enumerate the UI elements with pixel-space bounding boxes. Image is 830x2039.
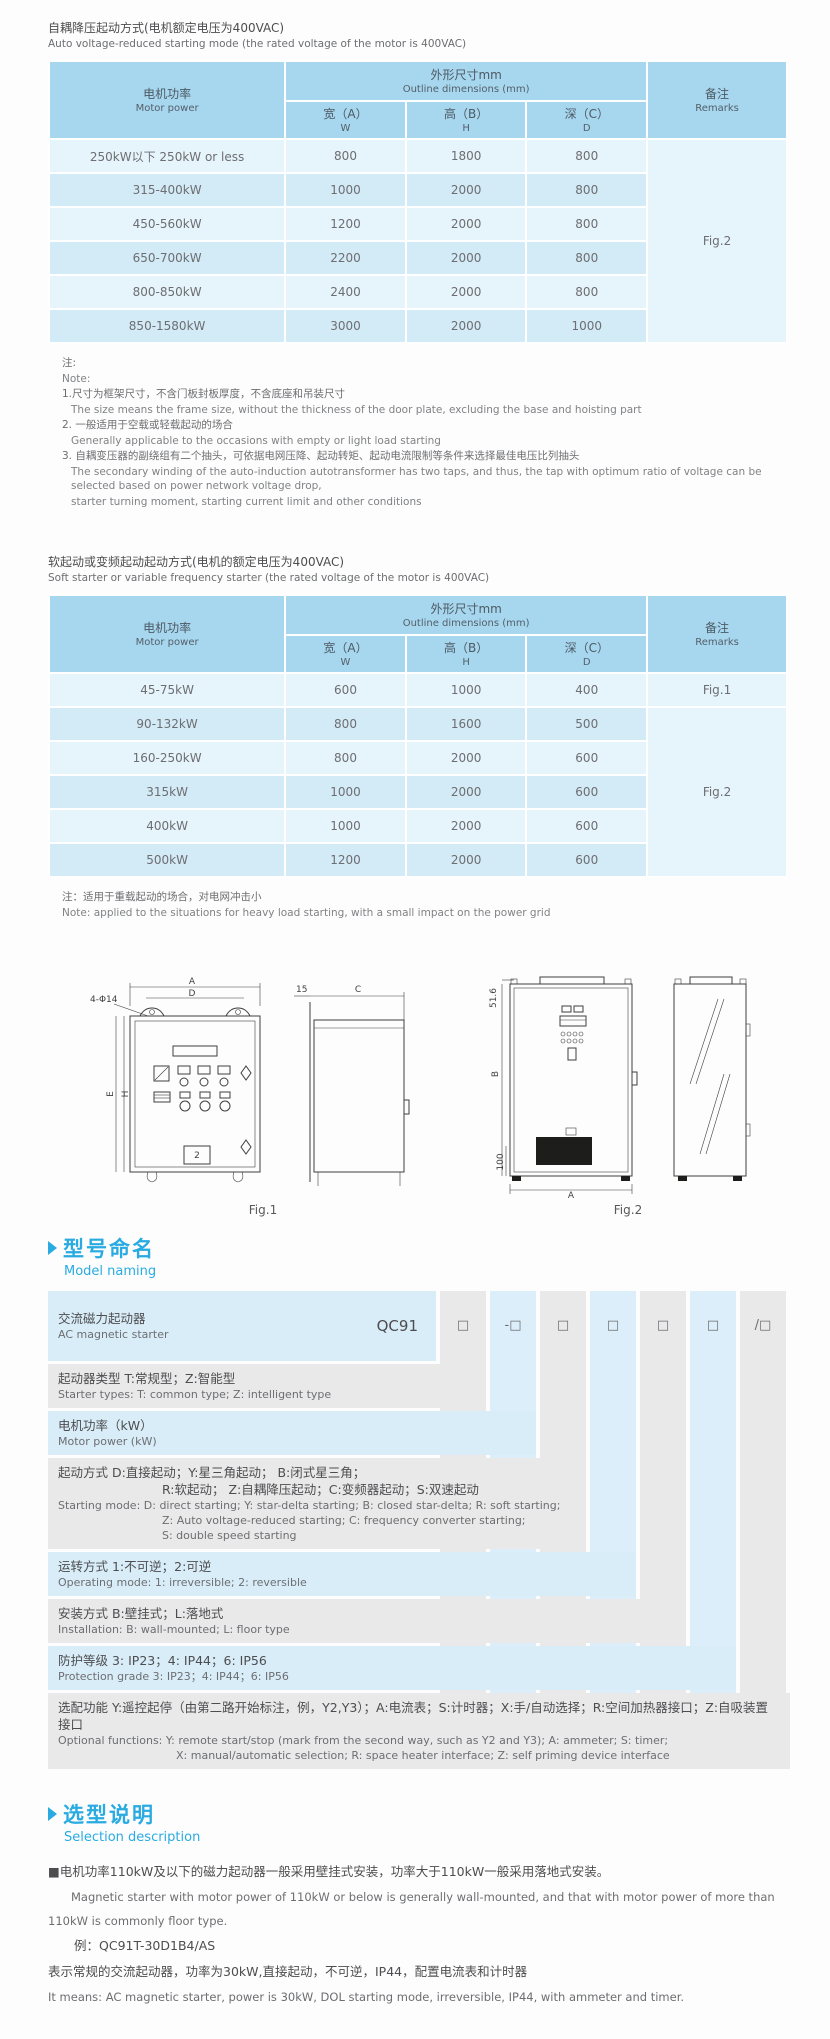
- header-depth: 深（C）D: [526, 101, 647, 139]
- model-naming-table: □ -□ □ □ □ □ /□ 交流磁力起动器 AC magnetic star…: [48, 1291, 790, 1769]
- fig1-caption: Fig.1: [88, 1203, 438, 1217]
- fig2-dim-b: B: [491, 1071, 501, 1077]
- depth-cell: 800: [526, 241, 647, 275]
- height-cell: 1800: [406, 139, 527, 173]
- table-row: 250kW以下 250kW or less 800 1800 800 Fig.2: [49, 139, 787, 173]
- fig1-dim-15: 15: [296, 985, 307, 995]
- note-label-zh: 注:: [62, 356, 790, 371]
- depth-cell: 500: [526, 707, 647, 741]
- height-cell: 2000: [406, 173, 527, 207]
- selection-title-en: Selection description: [64, 1830, 790, 1845]
- note-item: 2. 一般适用于空载或轻载起动的场合: [62, 418, 790, 433]
- fig2-roughness: 51.6: [489, 988, 499, 1008]
- power-cell: 500kW: [49, 843, 285, 877]
- height-cell: 2000: [406, 809, 527, 843]
- remark-cell: Fig.2: [647, 139, 787, 343]
- power-cell: 250kW以下 250kW or less: [49, 139, 285, 173]
- table2-title-en: Soft starter or variable frequency start…: [48, 571, 790, 586]
- header-width: 宽（A）W: [285, 635, 406, 673]
- power-cell: 400kW: [49, 809, 285, 843]
- selection-example-zh: 表示常规的交流起动器，功率为30kW,直接起动，不可逆，IP44，配置电流表和计…: [48, 1959, 790, 1985]
- depth-cell: 800: [526, 173, 647, 207]
- header-remarks: 备注 Remarks: [647, 61, 787, 139]
- auto-voltage-reduced-table: 电机功率 Motor power 外形尺寸mm Outline dimensio…: [48, 60, 788, 344]
- soft-starter-table: 电机功率 Motor power 外形尺寸mm Outline dimensio…: [48, 594, 788, 878]
- naming-row-installation: 安装方式 B:壁挂式；L:落地式 Installation: B: wall-m…: [48, 1599, 686, 1643]
- naming-row-product: 交流磁力起动器 AC magnetic starter QC91: [48, 1291, 436, 1361]
- table-row: 45-75kW 600 1000 400 Fig.1: [49, 673, 787, 707]
- height-cell: 2000: [406, 741, 527, 775]
- header-motor-power: 电机功率 Motor power: [49, 61, 285, 139]
- table2-title-zh: 软起动或变频起动起动方式(电机的额定电压为400VAC): [48, 554, 790, 571]
- header-outline-dimensions: 外形尺寸mm Outline dimensions (mm): [285, 61, 647, 101]
- fig2-drawing: 51.6 B: [478, 954, 778, 1199]
- depth-cell: 600: [526, 843, 647, 877]
- selection-example: 例：QC91T-30D1B4/AS: [74, 1933, 790, 1959]
- width-cell: 3000: [285, 309, 406, 343]
- section-arrow-icon: [48, 1241, 57, 1255]
- width-cell: 1000: [285, 173, 406, 207]
- height-cell: 2000: [406, 275, 527, 309]
- model-naming-title-zh: 型号命名: [63, 1233, 155, 1263]
- note-item: Note: applied to the situations for heav…: [62, 906, 790, 921]
- header-outline-dimensions: 外形尺寸mm Outline dimensions (mm): [285, 595, 647, 635]
- depth-cell: 400: [526, 673, 647, 707]
- fig1-dim-a: A: [189, 977, 196, 987]
- naming-row-starter-type: 起动器类型 T:常规型；Z:智能型 Starter types: T: comm…: [48, 1364, 486, 1408]
- fig1-dim-d: D: [189, 989, 196, 999]
- height-cell: 2000: [406, 309, 527, 343]
- width-cell: 2400: [285, 275, 406, 309]
- note-item: 注：适用于重载起动的场合，对电网冲击小: [62, 890, 790, 905]
- selection-paragraph-zh: ■电机功率110kW及以下的磁力起动器一般采用壁挂式安装，功率大于110kW一般…: [48, 1859, 790, 1885]
- width-cell: 600: [285, 673, 406, 707]
- fig2-dim-100: 100: [496, 1153, 506, 1170]
- height-cell: 1000: [406, 673, 527, 707]
- width-cell: 1000: [285, 809, 406, 843]
- note-item: The secondary winding of the auto-induct…: [62, 465, 790, 494]
- base-model-code: QC91: [377, 1317, 426, 1335]
- header-height: 高（B）H: [406, 635, 527, 673]
- width-cell: 800: [285, 707, 406, 741]
- power-cell: 45-75kW: [49, 673, 285, 707]
- notes-table1: 注: Note: 1.尺寸为框架尺寸，不含门板封板厚度，不含底座和吊装尺寸 Th…: [62, 356, 790, 509]
- selection-paragraph-en: Magnetic starter with motor power of 110…: [48, 1885, 790, 1933]
- width-cell: 1200: [285, 843, 406, 877]
- fig2-caption: Fig.2: [478, 1203, 778, 1217]
- header-remarks: 备注 Remarks: [647, 595, 787, 673]
- height-cell: 2000: [406, 843, 527, 877]
- height-cell: 2000: [406, 241, 527, 275]
- depth-cell: 800: [526, 207, 647, 241]
- width-cell: 1200: [285, 207, 406, 241]
- power-cell: 800-850kW: [49, 275, 285, 309]
- note-item: starter turning moment, starting current…: [62, 495, 790, 510]
- note-item: 3. 自耦变压器的副绕组有二个抽头，可依据电网压降、起动转矩、起动电流限制等条件…: [62, 449, 790, 464]
- figure-2: 51.6 B: [478, 954, 778, 1217]
- depth-cell: 600: [526, 741, 647, 775]
- naming-row-motor-power: 电机功率（kW） Motor power (kW): [48, 1411, 536, 1455]
- model-naming-title-en: Model naming: [64, 1264, 790, 1279]
- naming-row-optional-functions: 选配功能 Y:遥控起停（由第二路开始标注，例，Y2,Y3）；A:电流表；S:计时…: [48, 1693, 790, 1769]
- width-cell: 1000: [285, 775, 406, 809]
- figure-1: A D 4-Φ14 E H: [88, 954, 438, 1217]
- depth-cell: 600: [526, 775, 647, 809]
- table1-title-zh: 自耦降压起动方式(电机额定电压为400VAC): [48, 20, 790, 37]
- height-cell: 2000: [406, 775, 527, 809]
- selection-body: ■电机功率110kW及以下的磁力起动器一般采用壁挂式安装，功率大于110kW一般…: [48, 1859, 790, 2009]
- page: 自耦降压起动方式(电机额定电压为400VAC) Auto voltage-red…: [0, 0, 830, 2039]
- naming-row-starting-mode: 起动方式 D:直接起动；Y:星三角起动； B:闭式星三角； R:软起动； Z:自…: [48, 1458, 586, 1549]
- header-depth: 深（C）D: [526, 635, 647, 673]
- width-cell: 800: [285, 139, 406, 173]
- height-cell: 1600: [406, 707, 527, 741]
- power-cell: 850-1580kW: [49, 309, 285, 343]
- power-cell: 450-560kW: [49, 207, 285, 241]
- fig2-dim-a: A: [568, 1191, 575, 1199]
- power-cell: 90-132kW: [49, 707, 285, 741]
- note-label-en: Note:: [62, 372, 790, 387]
- table1-title-en: Auto voltage-reduced starting mode (the …: [48, 37, 790, 52]
- naming-row-operating-mode: 运转方式 1:不可逆；2:可逆 Operating mode: 1: irrev…: [48, 1552, 636, 1596]
- width-cell: 800: [285, 741, 406, 775]
- remark-cell: Fig.2: [647, 707, 787, 877]
- naming-row-protection-grade: 防护等级 3: IP23；4: IP44；6: IP56 Protection …: [48, 1646, 736, 1690]
- depth-cell: 800: [526, 275, 647, 309]
- section-arrow-icon: [48, 1807, 57, 1821]
- note-item: The size means the frame size, without t…: [62, 403, 790, 418]
- fig1-plate: 2: [194, 1151, 200, 1161]
- header-width: 宽（A）W: [285, 101, 406, 139]
- model-naming-header: 型号命名: [48, 1233, 790, 1263]
- power-cell: 160-250kW: [49, 741, 285, 775]
- depth-cell: 800: [526, 139, 647, 173]
- header-motor-power: 电机功率 Motor power: [49, 595, 285, 673]
- power-cell: 315kW: [49, 775, 285, 809]
- width-cell: 2200: [285, 241, 406, 275]
- fig1-drawing: A D 4-Φ14 E H: [88, 954, 438, 1199]
- note-item: 1.尺寸为框架尺寸，不含门板封板厚度，不含底座和吊装尺寸: [62, 387, 790, 402]
- power-cell: 650-700kW: [49, 241, 285, 275]
- depth-cell: 600: [526, 809, 647, 843]
- remark-cell: Fig.1: [647, 673, 787, 707]
- header-height: 高（B）H: [406, 101, 527, 139]
- selection-example-en: It means: AC magnetic starter, power is …: [48, 1985, 790, 2009]
- power-cell: 315-400kW: [49, 173, 285, 207]
- fig1-dim-e: E: [106, 1091, 116, 1097]
- selection-header: 选型说明: [48, 1799, 790, 1829]
- figures-row: A D 4-Φ14 E H: [88, 954, 790, 1217]
- notes-table2: 注：适用于重载起动的场合，对电网冲击小 Note: applied to the…: [62, 890, 790, 920]
- height-cell: 2000: [406, 207, 527, 241]
- note-item: Generally applicable to the occasions wi…: [62, 434, 790, 449]
- depth-cell: 1000: [526, 309, 647, 343]
- selection-title-zh: 选型说明: [63, 1799, 155, 1829]
- table-row: 90-132kW 800 1600 500 Fig.2: [49, 707, 787, 741]
- fig1-hole-label: 4-Φ14: [90, 995, 118, 1005]
- fig1-dim-c: C: [355, 985, 361, 995]
